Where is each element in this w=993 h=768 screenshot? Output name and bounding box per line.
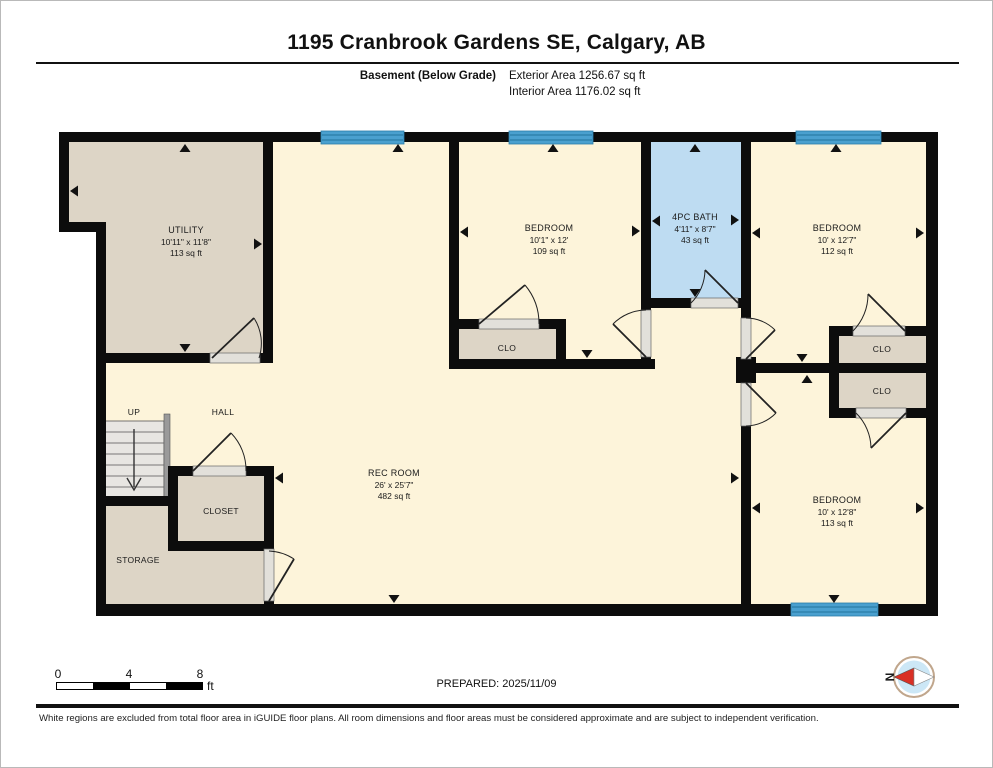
svg-text:113 sq ft: 113 sq ft [821, 518, 854, 528]
window [791, 603, 878, 616]
door-clo-right-bottom [856, 408, 906, 418]
footer-divider [36, 704, 959, 708]
svg-text:482 sq ft: 482 sq ft [378, 491, 411, 501]
door-bedroom-top [641, 310, 651, 357]
door-bedroom-right-top [741, 318, 751, 359]
svg-text:43 sq ft: 43 sq ft [681, 235, 710, 245]
label-storage: STORAGE [116, 555, 160, 565]
prepared-date: PREPARED: 2025/11/09 [1, 678, 992, 690]
window [509, 131, 593, 144]
svg-text:10' x 12'7": 10' x 12'7" [818, 235, 857, 245]
door-clo1 [479, 319, 539, 329]
stairs [104, 414, 170, 498]
door-storage [264, 549, 274, 601]
door-bath [691, 298, 738, 308]
svg-text:10'11" x 11'8": 10'11" x 11'8" [161, 237, 211, 247]
label-clo-right-bottom: CLO [873, 386, 891, 396]
svg-text:112 sq ft: 112 sq ft [821, 246, 854, 256]
svg-text:10'1" x 12': 10'1" x 12' [530, 235, 569, 245]
window [321, 131, 404, 144]
room-label-bath: 4PC BATH [672, 212, 718, 222]
floor-fills [64, 137, 933, 611]
disclaimer-text: White regions are excluded from total fl… [39, 713, 959, 724]
room-label-bedroom-top: BEDROOM [525, 223, 574, 233]
room-label-utility: UTILITY [168, 225, 204, 235]
svg-text:10' x 12'8": 10' x 12'8" [818, 507, 857, 517]
door-bedroom-right-bottom [741, 383, 751, 426]
label-closet: CLOSET [203, 506, 239, 516]
door-closet [193, 466, 246, 476]
compass-north-label: N [883, 673, 897, 682]
svg-text:4'11" x 8'7": 4'11" x 8'7" [674, 224, 715, 234]
label-clo-right-top: CLO [873, 344, 891, 354]
compass: N [881, 649, 951, 705]
room-label-bedroom-right-top: BEDROOM [813, 223, 862, 233]
window [796, 131, 881, 144]
svg-text:109 sq ft: 109 sq ft [533, 246, 566, 256]
room-label-bedroom-right-bottom: BEDROOM [813, 495, 862, 505]
svg-text:113 sq ft: 113 sq ft [170, 248, 203, 258]
label-hall: HALL [212, 407, 234, 417]
floorplan-page: 1195 Cranbrook Gardens SE, Calgary, AB B… [0, 0, 993, 768]
room-label-rec-room: REC ROOM [368, 468, 420, 478]
door-utility [210, 353, 260, 363]
floorplan-drawing: UTILITY 10'11" x 11'8" 113 sq ft BEDROOM… [1, 1, 993, 768]
svg-text:26' x 25'7": 26' x 25'7" [375, 480, 414, 490]
label-up: UP [128, 407, 140, 417]
door-clo-right-top [853, 326, 905, 336]
utility-floor [64, 137, 268, 358]
label-clo-bedroom-top: CLO [498, 343, 516, 353]
